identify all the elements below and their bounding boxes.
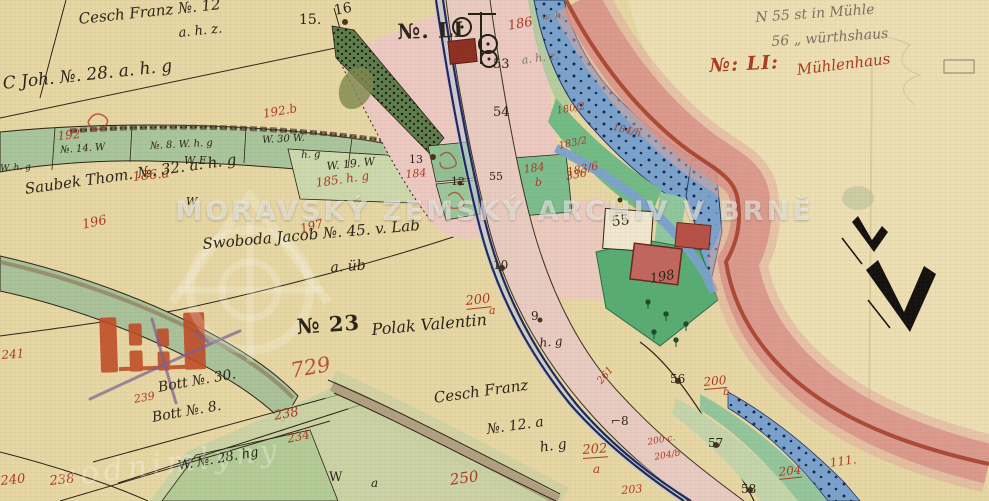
parcel-letter-red: a <box>489 305 496 316</box>
pencil-note: w. h. <box>541 11 565 23</box>
house-number: 55 <box>611 213 630 229</box>
cadastral-map[interactable]: Cesch Franz №. 12 a. h. z. 15. 16 C Joh.… <box>0 0 989 501</box>
parcel-number-red: 202 <box>582 442 608 459</box>
parcel-number-red: 192 <box>57 128 81 142</box>
parcel-label: W <box>329 471 342 484</box>
survey-number: 15. <box>299 13 321 27</box>
village-roman-number-note: №: LI: <box>709 53 779 76</box>
parcel-number-red: 200 <box>465 292 491 310</box>
house-number: 13 <box>409 154 423 165</box>
parcel-number-red: 238 <box>49 472 75 488</box>
parcel-number-red: 203 <box>621 483 643 496</box>
survey-number: 56 <box>670 373 685 385</box>
house-number: 55 <box>489 171 503 182</box>
parcel-number-red: 204 <box>778 464 802 480</box>
survey-mark: ⌐8 <box>611 415 629 427</box>
parcel-number-red: 241 <box>1 347 25 361</box>
house-number: 54 <box>493 106 510 119</box>
survey-number: 10 <box>493 259 508 271</box>
parcel-letter-red: a <box>593 463 600 475</box>
parcel-label: h. g <box>301 150 321 161</box>
tenure-note: a. üb <box>330 259 366 275</box>
parcel-number-red: 184 <box>405 167 427 180</box>
mill-building <box>448 39 477 65</box>
parcel-number-red: 239 <box>133 390 156 404</box>
tenure-note: h. g <box>539 335 563 349</box>
survey-number: 16 <box>333 1 353 18</box>
parcel-number-red: 240 <box>0 472 26 488</box>
survey-number: 58 <box>741 483 756 495</box>
house-number: 12 <box>451 176 465 187</box>
parcel-label: W. h. g <box>0 163 31 174</box>
survey-number: 57 <box>708 437 723 449</box>
survey-number: 9 <box>531 310 539 322</box>
parcel-label: W <box>186 196 197 207</box>
house-number: 53 <box>493 58 510 71</box>
parcel-number-red: 250 <box>449 469 479 488</box>
parcel-letter-red: b <box>535 177 542 188</box>
parcel-letter-red: b <box>723 388 729 398</box>
parcel-letter: a <box>371 477 378 489</box>
parcel-number-red: 111. <box>829 453 857 469</box>
village-roman-number: №. LI <box>397 19 465 42</box>
parcel-number-red: 184 <box>523 161 545 175</box>
house-number-large: № 23 <box>296 312 361 337</box>
tenure-note: h. g <box>539 437 568 455</box>
